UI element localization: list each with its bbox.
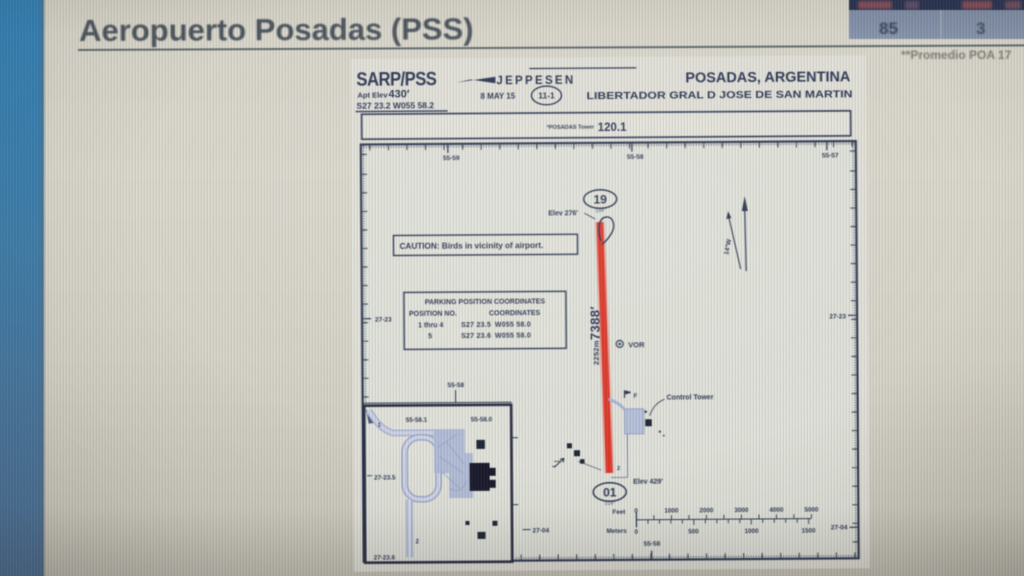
- svg-text:Apt Elev: Apt Elev: [357, 91, 388, 100]
- svg-text:55-58: 55-58: [627, 154, 644, 161]
- svg-text:27-23: 27-23: [375, 317, 392, 324]
- svg-text:194°: 194°: [595, 208, 605, 214]
- svg-text:55-57: 55-57: [822, 152, 839, 159]
- svg-text:014°: 014°: [605, 501, 615, 507]
- svg-text:*POSADAS Tower: *POSADAS Tower: [547, 125, 595, 131]
- svg-text:01: 01: [603, 485, 617, 499]
- svg-text:S27 23.5 W055 58.0: S27 23.5 W055 58.0: [461, 322, 531, 329]
- svg-text:PARKING POSITION COORDINATES: PARKING POSITION COORDINATES: [425, 298, 546, 306]
- svg-text:2252m: 2252m: [592, 340, 601, 365]
- svg-text:27-23: 27-23: [829, 313, 846, 320]
- svg-text:7388′: 7388′: [587, 306, 602, 340]
- svg-text:Elev 429′: Elev 429′: [633, 479, 663, 486]
- svg-text:COORDINATES: COORDINATES: [489, 310, 541, 317]
- svg-text:2000: 2000: [699, 507, 714, 514]
- svg-text:POSITION NO.: POSITION NO.: [409, 311, 457, 318]
- svg-text:CAUTION: Birds in vicinity of: CAUTION: Birds in vicinity of airport.: [399, 241, 543, 251]
- svg-text:Meters: Meters: [606, 528, 627, 535]
- svg-text:POSADAS, ARGENTINA: POSADAS, ARGENTINA: [685, 69, 851, 86]
- svg-text:5000: 5000: [804, 507, 819, 514]
- svg-text:27-23.6: 27-23.6: [374, 555, 396, 562]
- svg-text:5: 5: [428, 333, 432, 340]
- svg-text:55-58: 55-58: [644, 541, 661, 548]
- svg-text:8 MAY 15: 8 MAY 15: [480, 92, 515, 101]
- svg-text:Control Tower: Control Tower: [667, 394, 714, 401]
- svg-text:S27 23.2 W055 58.2: S27 23.2 W055 58.2: [357, 100, 435, 111]
- svg-text:F: F: [634, 394, 638, 400]
- svg-text:11-1: 11-1: [538, 90, 555, 100]
- svg-text:S27 23.6 W055 58.0: S27 23.6 W055 58.0: [461, 333, 531, 340]
- svg-text:27-04: 27-04: [532, 527, 549, 534]
- svg-text:500: 500: [688, 528, 699, 535]
- svg-text:55-58: 55-58: [447, 382, 464, 389]
- svg-text:1000: 1000: [664, 508, 679, 515]
- svg-text:4000: 4000: [769, 507, 784, 514]
- svg-text:1: 1: [378, 423, 381, 429]
- svg-text:VOR: VOR: [628, 340, 645, 349]
- svg-text:Feet: Feet: [612, 509, 626, 516]
- svg-text:55-58.0: 55-58.0: [471, 416, 493, 423]
- svg-text:55-58.1: 55-58.1: [406, 417, 428, 424]
- svg-text:LIBERTADOR GRAL D JOSE DE SAN: LIBERTADOR GRAL D JOSE DE SAN MARTIN: [586, 88, 852, 102]
- svg-text:0: 0: [634, 508, 638, 515]
- svg-text:Elev 276′: Elev 276′: [548, 210, 578, 217]
- svg-text:2: 2: [617, 466, 620, 472]
- svg-text:1 thru 4: 1 thru 4: [418, 322, 443, 329]
- svg-text:JEPPESEN: JEPPESEN: [496, 75, 575, 88]
- svg-text:1500: 1500: [801, 528, 816, 535]
- svg-text:430′: 430′: [388, 88, 409, 100]
- svg-text:55-59: 55-59: [443, 155, 460, 162]
- svg-text:19: 19: [593, 193, 607, 207]
- svg-text:1000: 1000: [744, 528, 759, 535]
- svg-text:27-23.5: 27-23.5: [374, 474, 396, 481]
- svg-text:3000: 3000: [734, 507, 749, 514]
- svg-text:0: 0: [635, 529, 639, 536]
- svg-text:27-04: 27-04: [831, 524, 848, 531]
- svg-text:120.1: 120.1: [598, 122, 627, 134]
